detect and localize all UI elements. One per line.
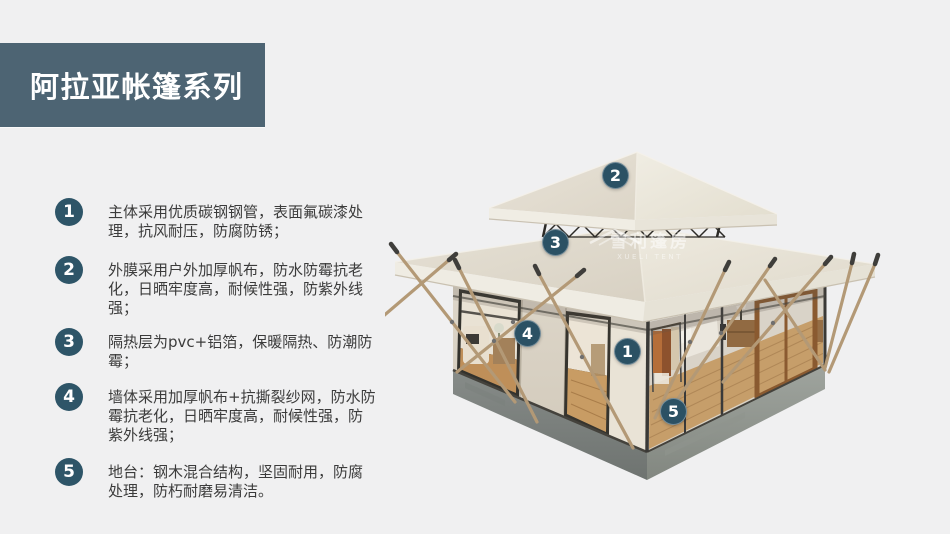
feature-text: 隔热层为pvc+铝箔，保暖隔热、防潮防霉； [108, 333, 376, 371]
feature-text: 外膜采用户外加厚帆布，防水防霉抗老化，日晒牢度高，耐候性强，防紫外线强； [108, 261, 376, 318]
page-title: 阿拉亚帐篷系列 [0, 64, 244, 106]
feature-number-badge: 2 [55, 256, 83, 284]
tent-diagram: 雪利篷房 XUELI TENT 1 2 3 4 5 [385, 130, 905, 510]
tent-illustration [385, 130, 905, 510]
tent-callout-2: 2 [602, 162, 629, 189]
feature-number-badge: 5 [55, 458, 83, 486]
feature-item-3: 3 隔热层为pvc+铝箔，保暖隔热、防潮防霉； [55, 328, 385, 371]
tent-callout-4: 4 [514, 320, 541, 347]
feature-item-4: 4 墙体采用加厚帆布+抗撕裂纱网，防水防霉抗老化，日晒牢度高，耐候性强，防紫外线… [55, 383, 385, 445]
feature-text: 地台：钢木混合结构，坚固耐用，防腐处理，防朽耐磨易清洁。 [108, 463, 376, 501]
tent-callout-1: 1 [614, 338, 641, 365]
tent-callout-5: 5 [660, 398, 687, 425]
top-roof [489, 152, 777, 231]
feature-number-badge: 1 [55, 198, 83, 226]
feature-item-5: 5 地台：钢木混合结构，坚固耐用，防腐处理，防朽耐磨易清洁。 [55, 458, 385, 501]
feature-text: 墙体采用加厚帆布+抗撕裂纱网，防水防霉抗老化，日晒牢度高，耐候性强，防紫外线强； [108, 388, 376, 445]
feature-text: 主体采用优质碳钢钢管，表面氟碳漆处理，抗风耐压，防腐防锈； [108, 203, 376, 241]
slide: 阿拉亚帐篷系列 1 主体采用优质碳钢钢管，表面氟碳漆处理，抗风耐压，防腐防锈； … [0, 0, 950, 534]
feature-item-1: 1 主体采用优质碳钢钢管，表面氟碳漆处理，抗风耐压，防腐防锈； [55, 198, 385, 241]
feature-number-badge: 3 [55, 328, 83, 356]
tent-callout-3: 3 [542, 229, 569, 256]
title-banner: 阿拉亚帐篷系列 [0, 43, 265, 127]
feature-number-badge: 4 [55, 383, 83, 411]
feature-item-2: 2 外膜采用户外加厚帆布，防水防霉抗老化，日晒牢度高，耐候性强，防紫外线强； [55, 256, 385, 318]
feature-list: 1 主体采用优质碳钢钢管，表面氟碳漆处理，抗风耐压，防腐防锈； 2 外膜采用户外… [55, 198, 385, 501]
corner-post [647, 320, 648, 452]
